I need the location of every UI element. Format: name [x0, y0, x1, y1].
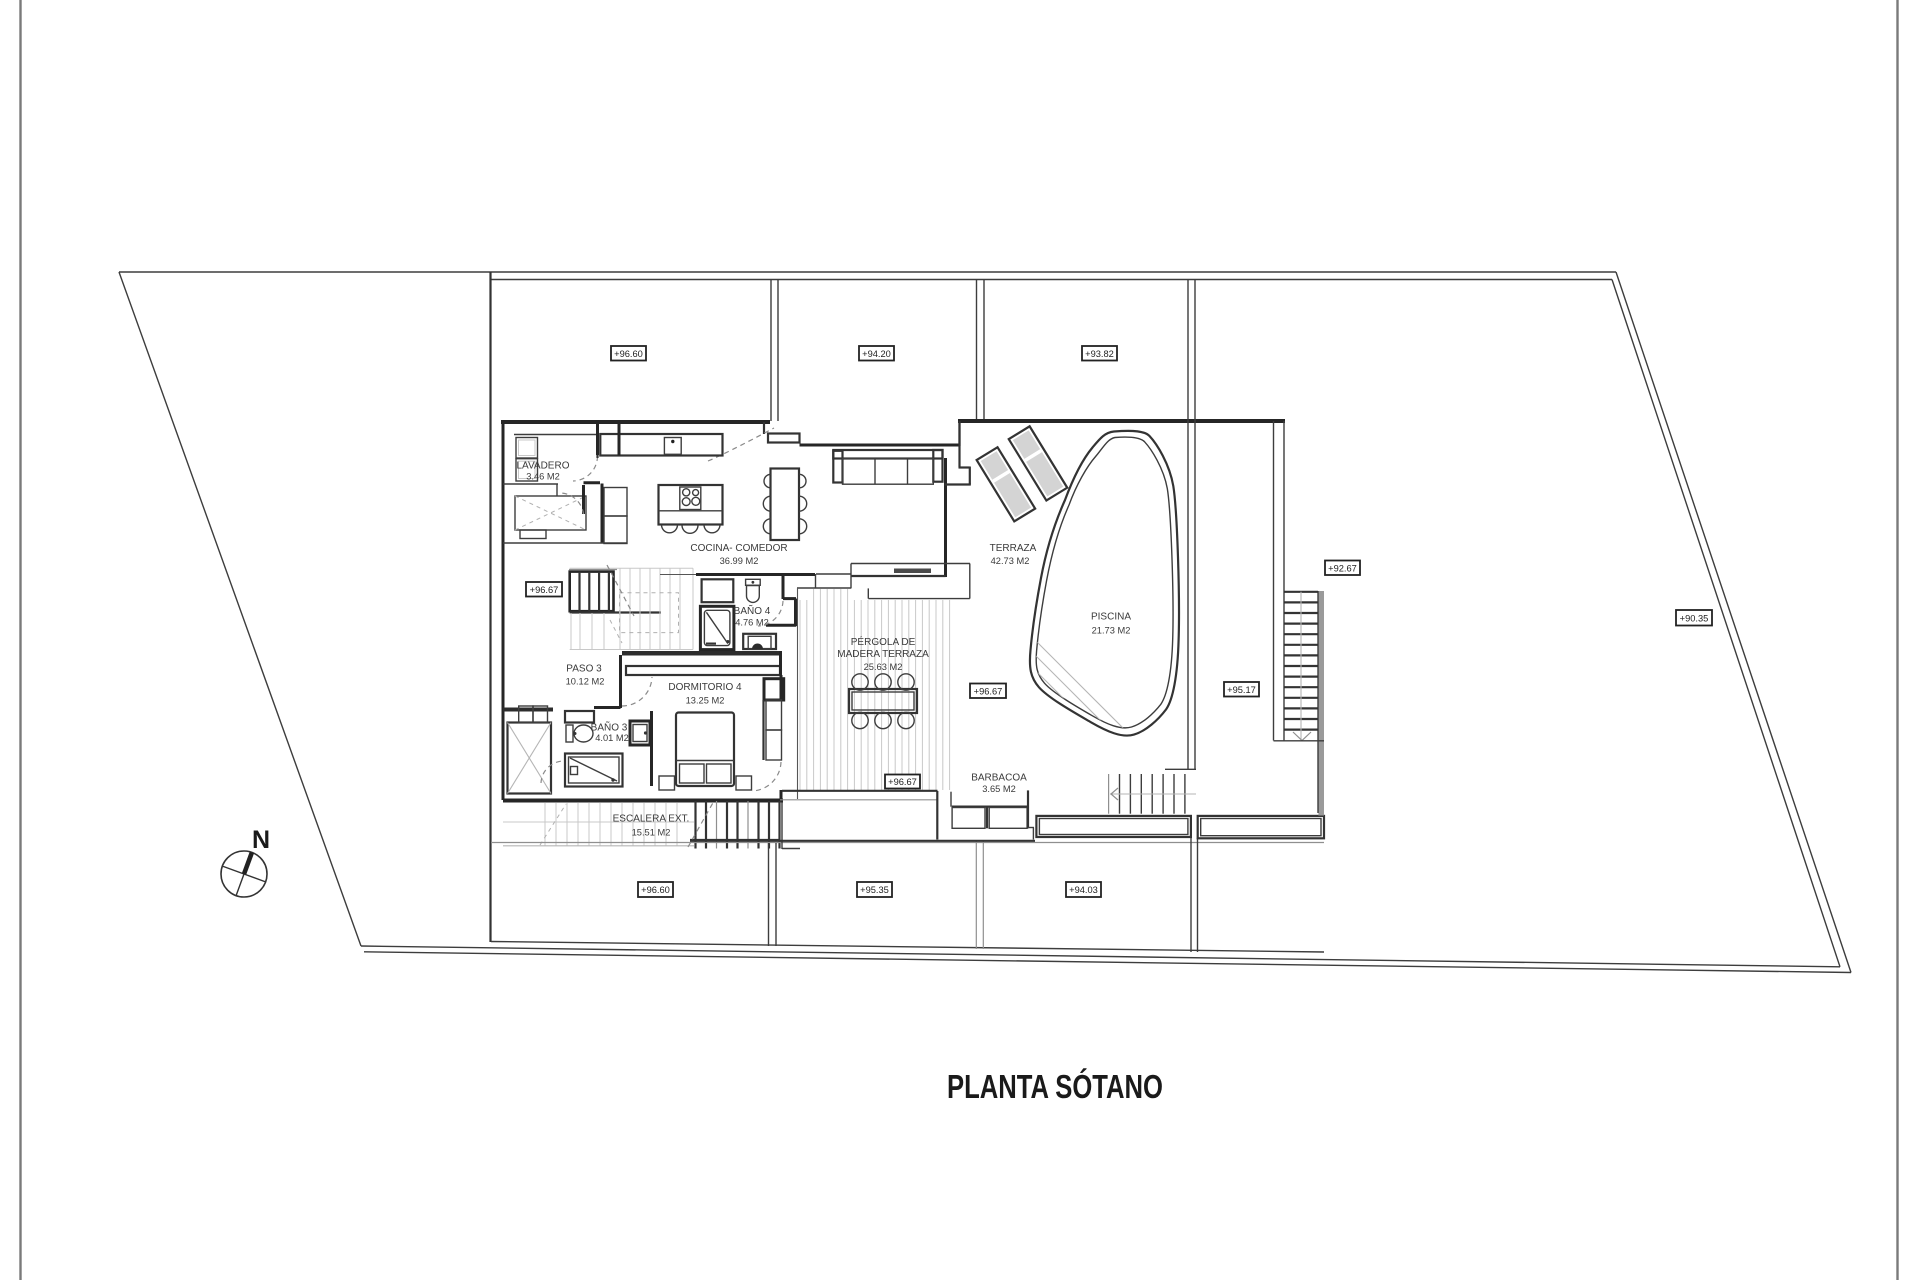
svg-text:+96.60: +96.60 — [614, 349, 643, 359]
svg-text:BAÑO 3: BAÑO 3 — [591, 721, 628, 734]
svg-text:3.46 M2: 3.46 M2 — [526, 472, 560, 482]
svg-text:PÉRGOLA DE: PÉRGOLA DE — [851, 635, 916, 648]
svg-text:COCINA- COMEDOR: COCINA- COMEDOR — [690, 543, 787, 554]
svg-text:ESCALERA EXT.: ESCALERA EXT. — [613, 814, 690, 825]
svg-text:BAÑO 4: BAÑO 4 — [734, 604, 771, 617]
svg-text:+92.67: +92.67 — [1328, 563, 1357, 573]
svg-text:+95.35: +95.35 — [860, 885, 889, 895]
svg-text:N: N — [252, 826, 270, 854]
svg-text:+96.67: +96.67 — [888, 777, 917, 787]
svg-text:15.51 M2: 15.51 M2 — [632, 828, 671, 838]
svg-text:+94.20: +94.20 — [862, 349, 891, 359]
svg-text:+94.03: +94.03 — [1069, 885, 1098, 895]
svg-text:+96.67: +96.67 — [530, 585, 559, 595]
svg-text:PISCINA: PISCINA — [1091, 612, 1131, 623]
svg-text:13.25 M2: 13.25 M2 — [686, 696, 725, 706]
svg-text:MADERA TERRAZA: MADERA TERRAZA — [837, 649, 929, 660]
svg-text:+95.17: +95.17 — [1227, 685, 1256, 695]
svg-text:DORMITORIO 4: DORMITORIO 4 — [668, 682, 742, 693]
svg-text:PLANTA SÓTANO: PLANTA SÓTANO — [947, 1068, 1163, 1105]
svg-text:42.73 M2: 42.73 M2 — [991, 556, 1030, 566]
svg-text:3.65 M2: 3.65 M2 — [982, 784, 1016, 794]
svg-text:4.76 M2: 4.76 M2 — [735, 618, 769, 628]
svg-text:10.12 M2: 10.12 M2 — [566, 677, 605, 687]
svg-text:25.63 M2: 25.63 M2 — [864, 662, 903, 672]
svg-text:+93.82: +93.82 — [1085, 349, 1114, 359]
svg-text:LAVADERO: LAVADERO — [517, 461, 570, 472]
svg-text:PASO 3: PASO 3 — [566, 664, 602, 675]
svg-text:21.73 M2: 21.73 M2 — [1092, 626, 1131, 636]
svg-text:36.99 M2: 36.99 M2 — [720, 556, 759, 566]
svg-text:+96.60: +96.60 — [641, 885, 670, 895]
svg-text:BARBACOA: BARBACOA — [971, 773, 1027, 784]
svg-text:TERRAZA: TERRAZA — [990, 543, 1037, 554]
svg-text:+90.35: +90.35 — [1680, 613, 1709, 623]
svg-text:+96.67: +96.67 — [974, 686, 1003, 696]
svg-text:4.01 M2: 4.01 M2 — [595, 733, 629, 743]
